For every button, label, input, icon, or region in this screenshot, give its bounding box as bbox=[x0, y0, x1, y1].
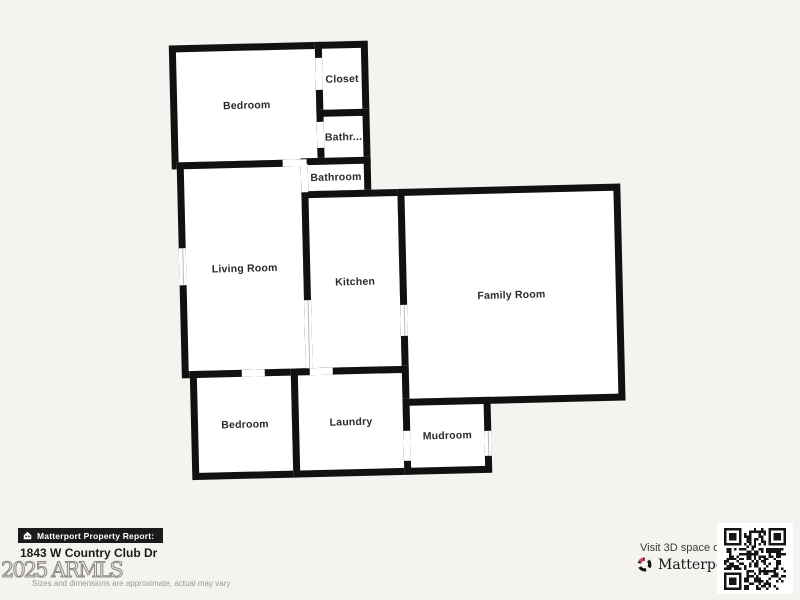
room-bedroom-top: Bedroom bbox=[169, 42, 325, 170]
house-icon bbox=[23, 531, 32, 540]
room-label-bedroom-top: Bedroom bbox=[223, 99, 271, 112]
room-label-living-room: Living Room bbox=[212, 262, 278, 276]
room-label-closet: Closet bbox=[325, 72, 359, 85]
kitchen-doorway bbox=[310, 368, 333, 376]
visit-3d-text: Visit 3D space on bbox=[640, 542, 725, 554]
room-living-room: Living Room bbox=[177, 159, 313, 378]
disclaimer-text: Sizes and dimensions are approximate, ac… bbox=[32, 579, 230, 588]
kitchen-family-doorway bbox=[400, 305, 408, 336]
bathroom-small-door bbox=[317, 122, 325, 148]
room-laundry: Laundry bbox=[291, 366, 412, 478]
report-badge: Matterport Property Report: bbox=[18, 528, 163, 543]
room-label-mudroom: Mudroom bbox=[423, 429, 473, 442]
room-label-family-room: Family Room bbox=[477, 288, 545, 302]
bathroom-door bbox=[301, 164, 309, 192]
floor-plan: BedroomClosetBathr...Living RoomBathroom… bbox=[169, 35, 627, 481]
report-badge-label: Matterport Property Report: bbox=[37, 531, 154, 541]
room-kitchen: Kitchen bbox=[301, 189, 408, 375]
room-bedroom-bottom: Bedroom bbox=[190, 368, 301, 480]
room-label-laundry: Laundry bbox=[329, 415, 372, 428]
armls-watermark: 2025 ARMLS bbox=[1, 560, 122, 581]
room-label-bedroom-bottom: Bedroom bbox=[221, 418, 269, 431]
room-label-bathroom-small: Bathr... bbox=[325, 131, 362, 144]
matterport-logo-icon bbox=[636, 556, 653, 573]
qr-code-panel bbox=[717, 523, 793, 594]
room-label-bathroom: Bathroom bbox=[310, 171, 361, 184]
bedroom-bottom-doorway bbox=[242, 369, 265, 377]
mudroom-right-window bbox=[484, 431, 492, 456]
room-mudroom: Mudroom bbox=[402, 397, 492, 475]
qr-code bbox=[724, 528, 786, 590]
living-room-window bbox=[179, 248, 187, 285]
room-closet: Closet bbox=[315, 41, 370, 117]
room-label-kitchen: Kitchen bbox=[335, 276, 375, 289]
room-family-room: Family Room bbox=[397, 184, 625, 406]
mudroom-left-door bbox=[403, 431, 411, 461]
closet-door bbox=[315, 58, 323, 90]
